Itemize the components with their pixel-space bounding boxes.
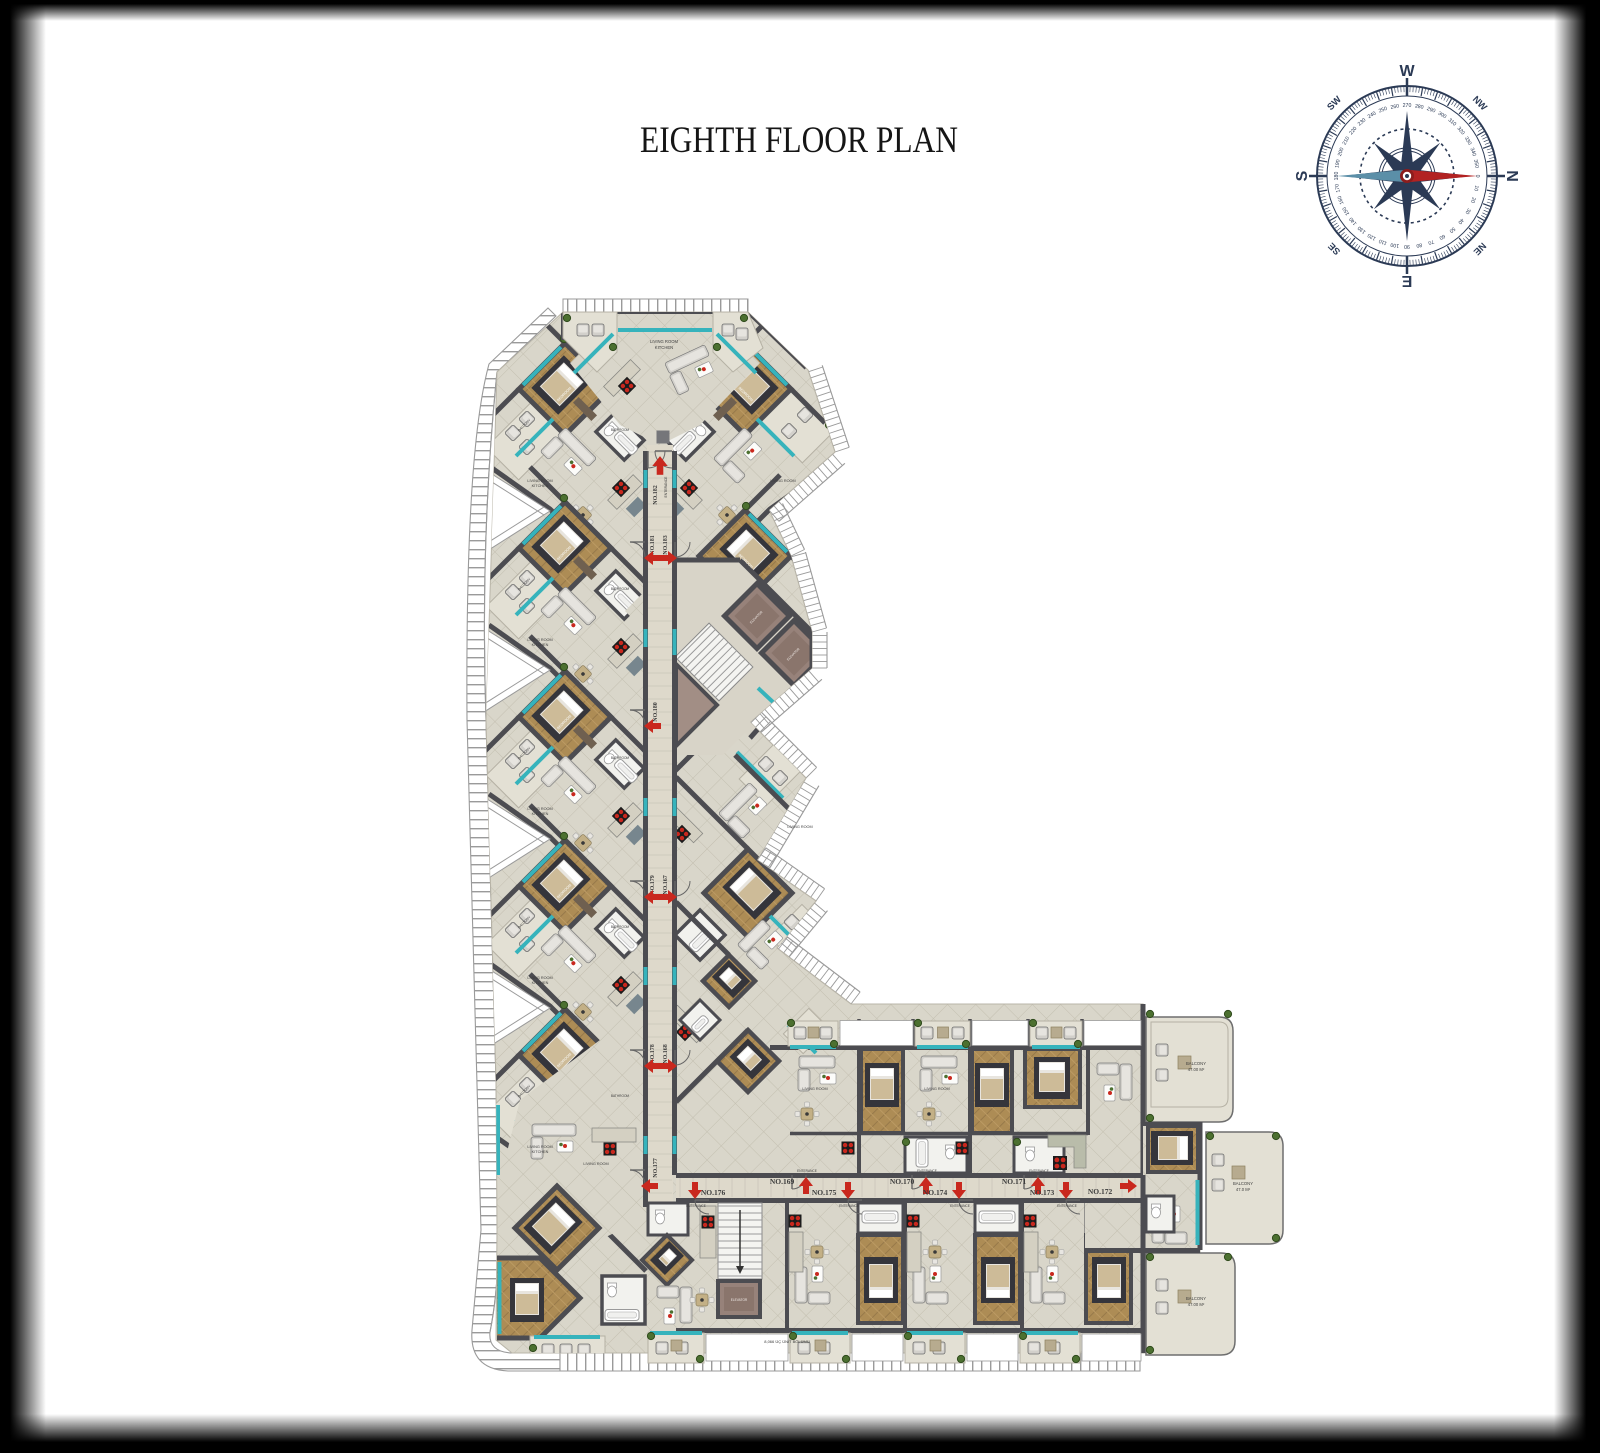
svg-text:NO.177: NO.177 <box>653 1158 659 1178</box>
svg-text:ENTERANCE: ENTERANCE <box>950 1204 970 1208</box>
svg-text:BALCONY: BALCONY <box>1233 1181 1253 1186</box>
svg-text:BALCONY: BALCONY <box>1186 1061 1206 1066</box>
svg-text:NO.172: NO.172 <box>1088 1187 1113 1196</box>
svg-text:NO.171: NO.171 <box>1002 1177 1027 1186</box>
svg-text:LIVING ROOM: LIVING ROOM <box>787 825 812 829</box>
svg-text:NO.182: NO.182 <box>653 485 659 505</box>
svg-text:47.0 M²: 47.0 M² <box>1236 1187 1251 1192</box>
svg-text:8,066 ÜÇ ÜNİT BÖLÜMÜ: 8,066 ÜÇ ÜNİT BÖLÜMÜ <box>764 1339 810 1344</box>
svg-text:270: 270 <box>1403 103 1412 109</box>
svg-text:W: W <box>1399 63 1415 80</box>
svg-text:KITCHEN: KITCHEN <box>532 981 549 985</box>
svg-text:LIVING ROOM: LIVING ROOM <box>650 339 678 344</box>
svg-text:47.00 M²: 47.00 M² <box>1188 1067 1205 1072</box>
svg-text:EIGHTH FLOOR PLAN: EIGHTH FLOOR PLAN <box>640 120 958 161</box>
svg-text:KITCHEN: KITCHEN <box>532 484 549 488</box>
svg-text:BATHROOM: BATHROOM <box>611 587 630 591</box>
svg-text:ENTERANCE: ENTERANCE <box>797 1169 817 1173</box>
svg-text:ENTERANCE: ENTERANCE <box>664 476 668 498</box>
svg-text:LIVING ROOM: LIVING ROOM <box>583 1162 608 1166</box>
svg-text:KITCHEN: KITCHEN <box>532 643 549 647</box>
svg-text:BATHROOM: BATHROOM <box>611 925 630 929</box>
svg-text:LIVING ROOM: LIVING ROOM <box>924 1087 949 1091</box>
svg-text:10: 10 <box>1472 185 1479 192</box>
svg-text:BATHROOM: BATHROOM <box>611 756 630 760</box>
svg-text:LIVING ROOM: LIVING ROOM <box>527 638 552 642</box>
svg-text:LIVING ROOM: LIVING ROOM <box>527 807 552 811</box>
svg-text:80: 80 <box>1416 241 1423 248</box>
svg-text:NO.175: NO.175 <box>812 1188 837 1197</box>
svg-text:KITCHEN: KITCHEN <box>532 1150 549 1154</box>
svg-text:S: S <box>1294 170 1311 181</box>
svg-text:LIVING ROOM: LIVING ROOM <box>527 1145 552 1149</box>
svg-text:LIVING ROOM: LIVING ROOM <box>527 479 552 483</box>
svg-text:ELEVATOR: ELEVATOR <box>731 1298 748 1302</box>
svg-text:90: 90 <box>1404 243 1410 249</box>
svg-text:47.00 M²: 47.00 M² <box>1188 1302 1205 1307</box>
svg-text:LIVING ROOM: LIVING ROOM <box>802 1087 827 1091</box>
svg-text:NO.180: NO.180 <box>653 702 659 722</box>
svg-text:LIVING ROOM: LIVING ROOM <box>770 479 795 483</box>
svg-text:KITCHEN: KITCHEN <box>532 812 549 816</box>
svg-text:ENTERANCE: ENTERANCE <box>917 1169 937 1173</box>
svg-text:N: N <box>1503 170 1520 182</box>
svg-text:BATHROOM: BATHROOM <box>611 428 630 432</box>
svg-text:NO.169: NO.169 <box>770 1177 795 1186</box>
svg-text:NO.176: NO.176 <box>701 1188 726 1197</box>
svg-text:ENTERANCE: ENTERANCE <box>839 1204 859 1208</box>
svg-text:NO.174: NO.174 <box>923 1188 948 1197</box>
svg-text:LIVING ROOM: LIVING ROOM <box>527 976 552 980</box>
svg-text:E: E <box>1401 272 1412 289</box>
svg-text:BATHROOM: BATHROOM <box>611 1094 630 1098</box>
svg-text:ENTERANCE: ENTERANCE <box>686 1204 706 1208</box>
svg-text:NO.170: NO.170 <box>890 1177 915 1186</box>
svg-text:NO.173: NO.173 <box>1030 1188 1055 1197</box>
svg-text:BALCONY: BALCONY <box>1186 1296 1206 1301</box>
svg-text:ENTERANCE: ENTERANCE <box>1057 1204 1077 1208</box>
svg-text:ENTERANCE: ENTERANCE <box>1029 1169 1049 1173</box>
svg-text:KITCHEN: KITCHEN <box>655 345 673 350</box>
